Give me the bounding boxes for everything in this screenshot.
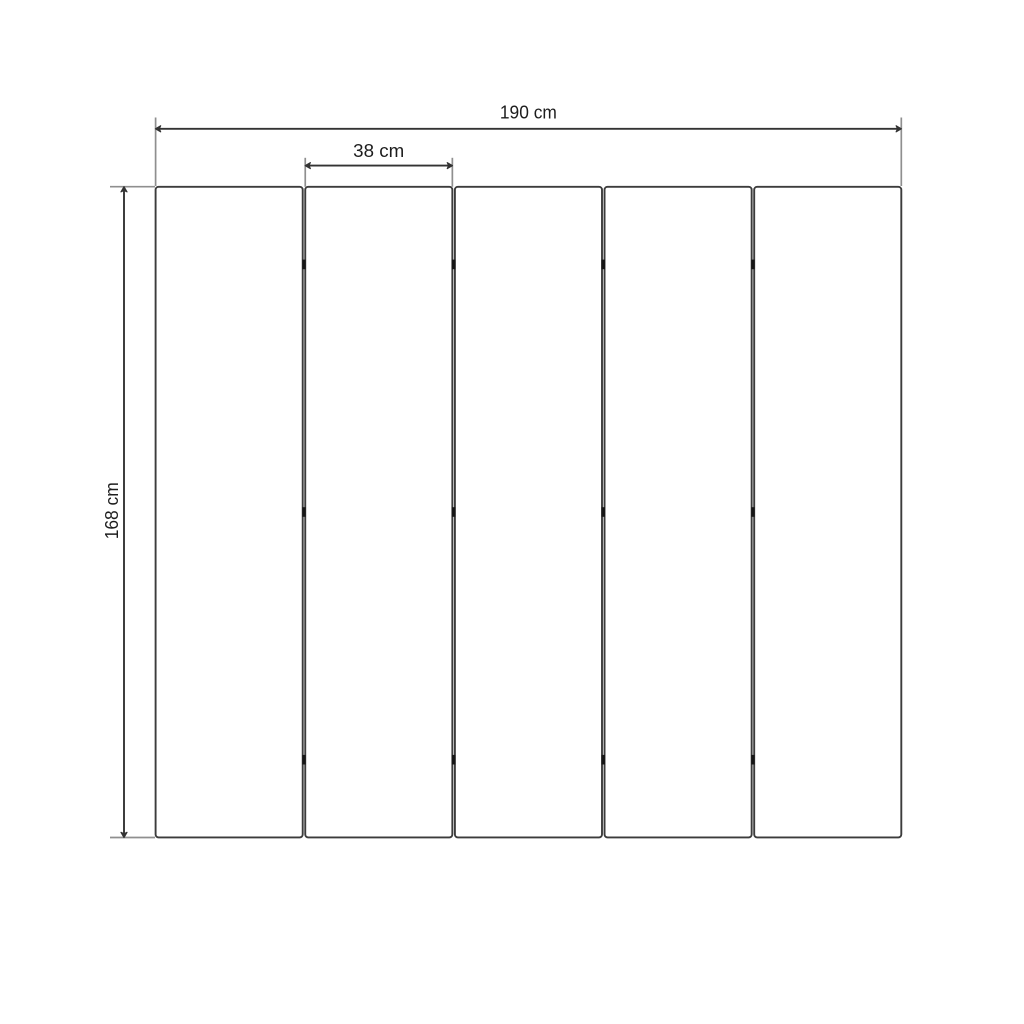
svg-text:38 cm: 38 cm — [353, 141, 404, 161]
svg-text:168 cm: 168 cm — [102, 482, 122, 539]
svg-text:190 cm: 190 cm — [500, 103, 557, 123]
